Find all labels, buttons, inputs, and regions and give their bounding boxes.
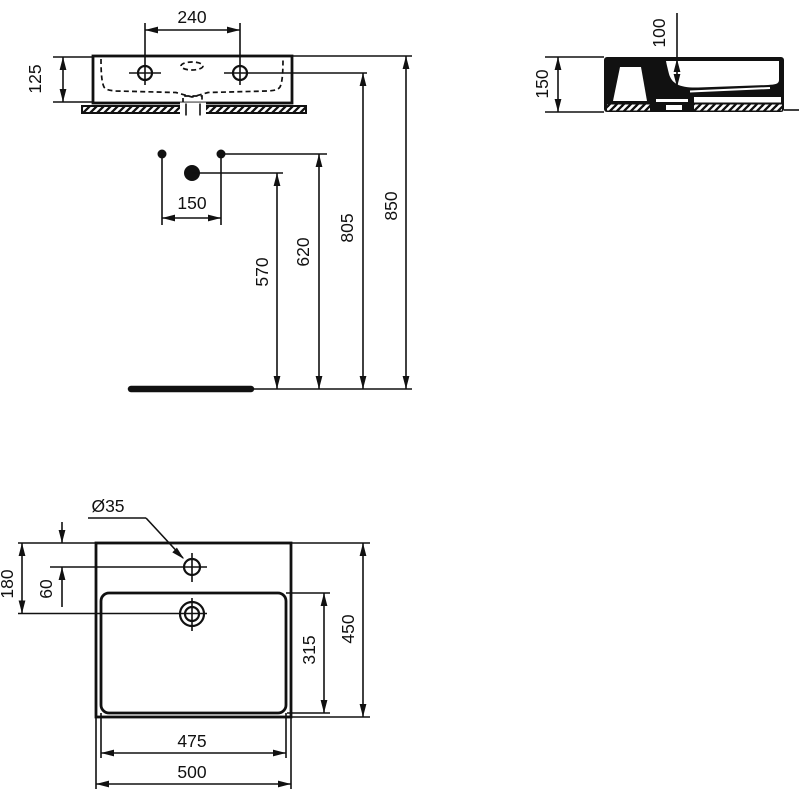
- front-view: 240 125 150: [25, 7, 412, 389]
- dim-label-dia35: Ø35: [91, 496, 124, 516]
- dim-label-100: 100: [649, 18, 669, 47]
- side-body-section: [604, 57, 799, 112]
- dim-bowl-width: 475: [101, 713, 286, 758]
- dim-label-500: 500: [177, 762, 206, 782]
- dim-fixing-height: 805: [224, 73, 367, 389]
- dim-label-805: 805: [337, 213, 357, 242]
- side-view: 100 150: [532, 13, 799, 112]
- side-bowl-interior: [666, 61, 779, 88]
- dim-label-150-front: 150: [177, 193, 206, 213]
- front-basin-outline: [93, 56, 292, 103]
- dim-label-125: 125: [25, 64, 45, 93]
- dim-label-850: 850: [381, 191, 401, 220]
- front-bracket-hatched: [82, 103, 306, 117]
- front-supply-points: [158, 150, 226, 226]
- dim-bowl-depth-plan: 315: [286, 593, 330, 713]
- dim-overall-depth: 450: [291, 543, 370, 717]
- dim-label-60: 60: [36, 579, 56, 599]
- dim-label-150-side: 150: [532, 69, 552, 98]
- dim-supply-spacing: 150: [162, 193, 221, 221]
- dim-label-570: 570: [252, 257, 272, 286]
- dim-label-180: 180: [0, 569, 17, 598]
- dim-label-620: 620: [293, 237, 313, 266]
- dim-label-475: 475: [177, 731, 206, 751]
- dim-tap-offset: 60: [36, 522, 65, 607]
- plan-view: Ø35 180 60 450: [0, 496, 370, 789]
- dim-supply-height: 620: [221, 154, 327, 389]
- technical-drawing: 240 125 150: [0, 0, 800, 800]
- dim-body-height: 125: [25, 57, 93, 102]
- dim-body-height-side: 150: [532, 57, 604, 112]
- dim-label-240: 240: [177, 7, 206, 27]
- dim-label-450: 450: [338, 614, 358, 643]
- plan-basin-outline: [96, 543, 291, 717]
- dim-label-315: 315: [299, 635, 319, 664]
